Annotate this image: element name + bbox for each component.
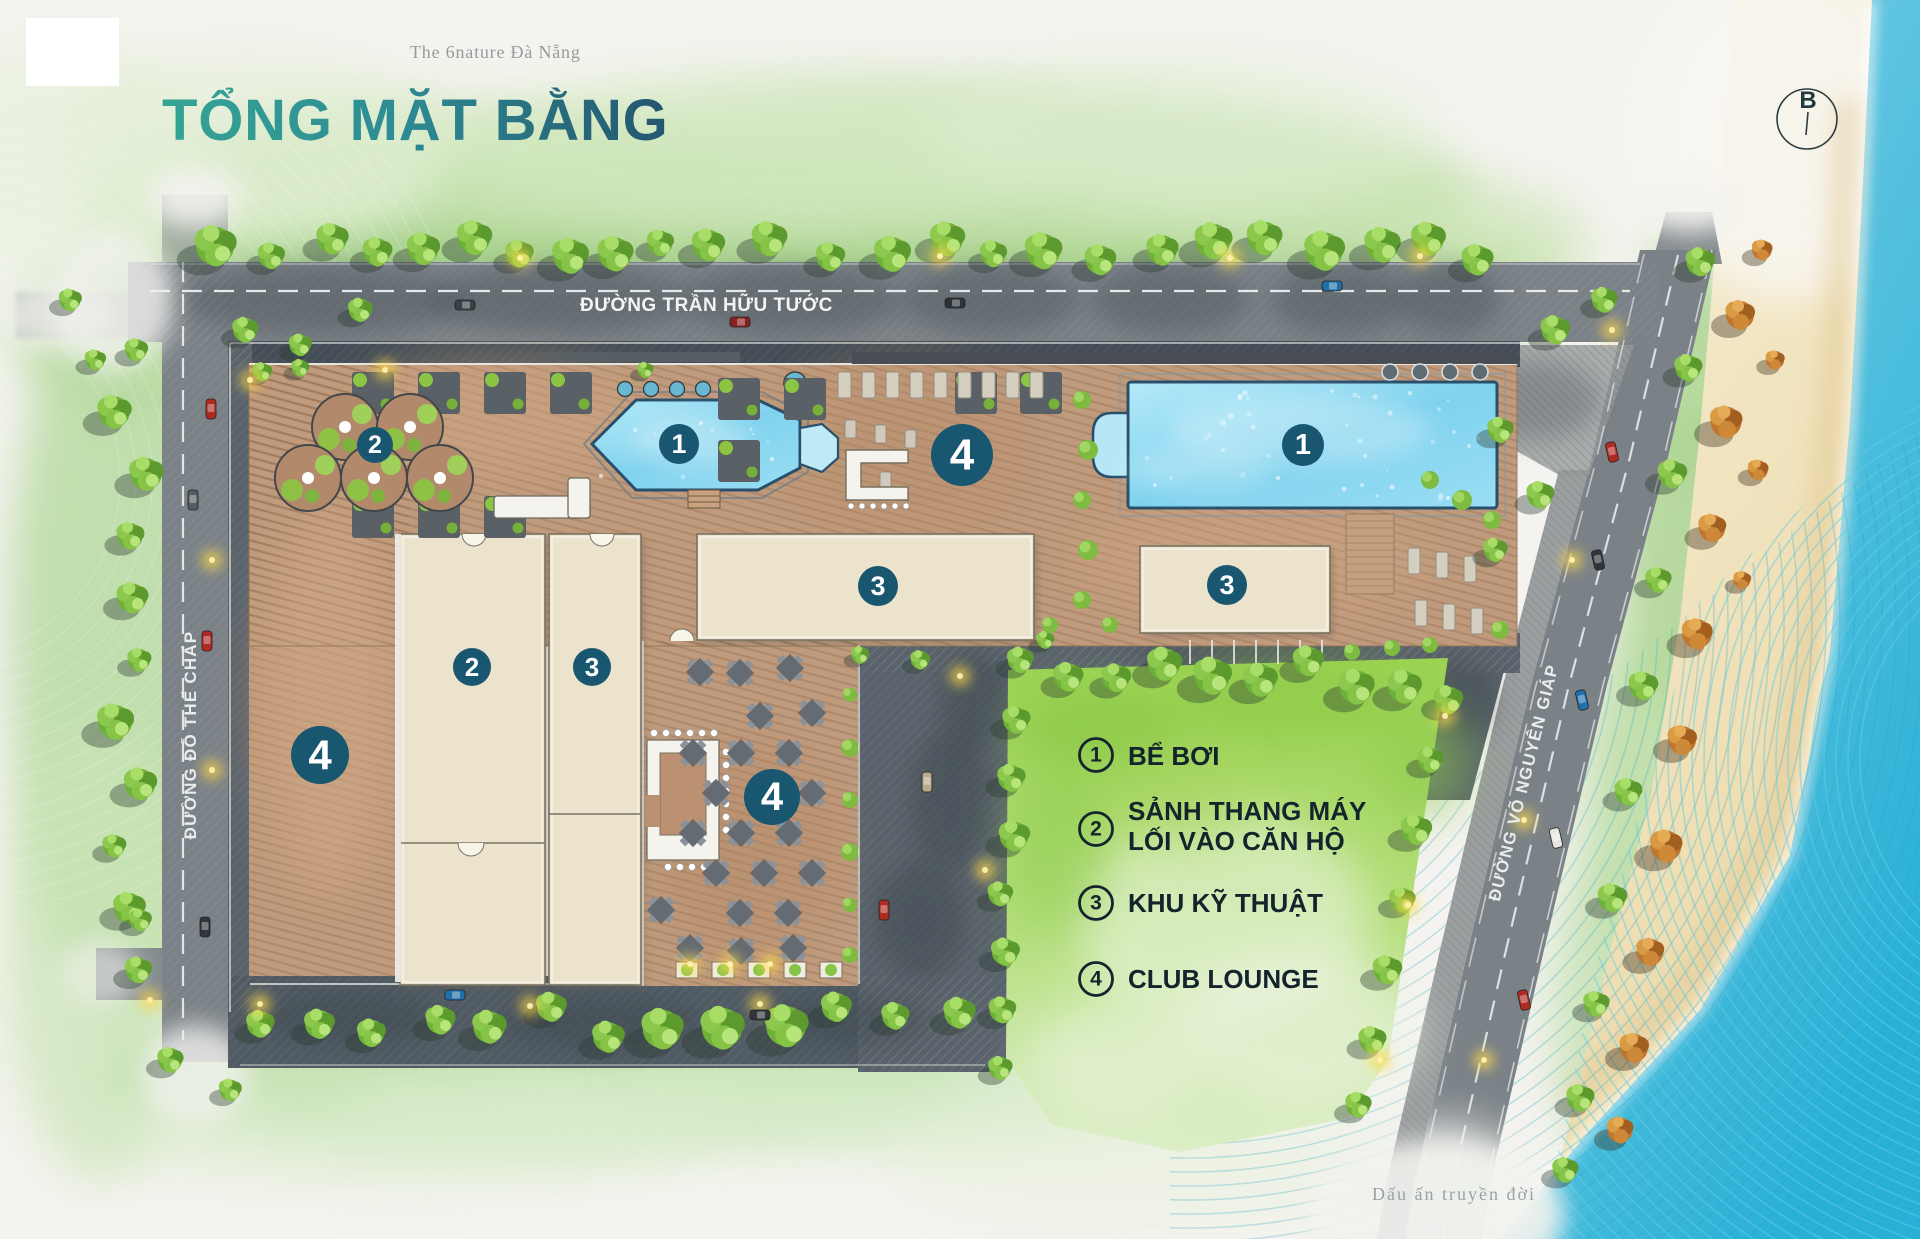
svg-text:B: B: [1799, 87, 1816, 114]
svg-text:LỐI VÀO CĂN HỘ: LỐI VÀO CĂN HỘ: [1128, 826, 1345, 856]
svg-text:ĐƯỜNG ĐỖ THẾ CHẤP: ĐƯỜNG ĐỖ THẾ CHẤP: [181, 631, 200, 840]
svg-text:CLUB LOUNGE: CLUB LOUNGE: [1128, 964, 1319, 994]
svg-text:1: 1: [1090, 744, 1102, 767]
svg-text:2: 2: [465, 652, 479, 682]
svg-text:3: 3: [1219, 570, 1234, 600]
svg-text:4: 4: [308, 732, 332, 779]
svg-text:3: 3: [1090, 892, 1102, 915]
svg-text:4: 4: [950, 431, 975, 480]
svg-text:SẢNH THANG MÁY: SẢNH THANG MÁY: [1128, 796, 1366, 826]
svg-text:Dấu ấn truyền đời: Dấu ấn truyền đời: [1372, 1184, 1536, 1204]
svg-text:The 6nature Đà Nẵng: The 6nature Đà Nẵng: [410, 42, 581, 62]
svg-text:TỔNG MẶT BẰNG: TỔNG MẶT BẰNG: [162, 88, 669, 153]
svg-text:BỂ BƠI: BỂ BƠI: [1128, 741, 1220, 771]
svg-text:1: 1: [671, 429, 686, 459]
svg-text:ĐƯỜNG TRẦN HỮU TƯỚC: ĐƯỜNG TRẦN HỮU TƯỚC: [580, 294, 833, 316]
svg-text:4: 4: [1090, 968, 1102, 991]
svg-text:1: 1: [1295, 429, 1311, 461]
svg-text:2: 2: [1090, 818, 1102, 841]
svg-text:4: 4: [761, 775, 784, 819]
svg-text:KHU KỸ THUẬT: KHU KỸ THUẬT: [1128, 888, 1323, 918]
svg-text:3: 3: [585, 652, 599, 682]
svg-text:2: 2: [368, 431, 382, 459]
svg-text:3: 3: [870, 571, 885, 601]
